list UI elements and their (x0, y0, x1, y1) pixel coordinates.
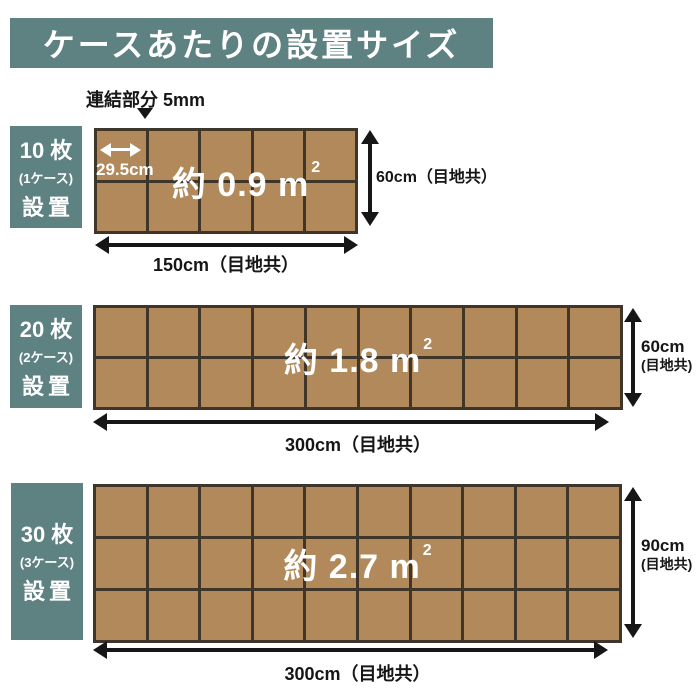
width-dimension-label-2: 300cm（目地共） (93, 431, 623, 457)
tile (518, 308, 568, 356)
case-count-box-2: 20 枚 (2ケース) 設置 (10, 305, 82, 408)
install-label: 設置 (23, 574, 75, 606)
height-dimension-label-3: 90cm (目地共) (641, 536, 692, 573)
tile (254, 539, 304, 588)
tile (307, 308, 357, 356)
height-dimension-arrow-1 (368, 143, 372, 213)
install-label: 設置 (22, 369, 74, 401)
tile (201, 308, 251, 356)
tile (201, 591, 251, 640)
tile (517, 539, 567, 588)
tile (96, 308, 146, 356)
height-dimension-label-2: 60cm (目地共) (641, 337, 692, 374)
width-dimension-label-3: 300cm（目地共） (93, 660, 622, 686)
tile (518, 359, 568, 407)
tile (464, 487, 514, 536)
tile (149, 131, 198, 180)
tile (306, 487, 356, 536)
title-banner: ケースあたりの設置サイズ (10, 18, 493, 68)
tile (570, 308, 620, 356)
tile (201, 539, 251, 588)
tile (96, 539, 146, 588)
tile-grid-3 (93, 484, 622, 643)
tile (201, 359, 251, 407)
tile (464, 539, 514, 588)
tile (254, 308, 304, 356)
tile (201, 131, 250, 180)
tile (96, 359, 146, 407)
tile (412, 359, 462, 407)
installation-size-infographic: ケースあたりの設置サイズ 連結部分 5mm 10 枚 (1ケース) 設置 約 0… (0, 0, 700, 700)
tile (359, 539, 409, 588)
height-dimension-label-1: 60cm（目地共） (376, 168, 497, 187)
tile-width-arrow (110, 148, 131, 151)
tile (464, 591, 514, 640)
tile (360, 359, 410, 407)
tile (306, 539, 356, 588)
tile (149, 308, 199, 356)
width-dimension-arrow-3 (106, 648, 595, 652)
tile (96, 487, 146, 536)
width-dimension-arrow-1 (108, 243, 345, 247)
tile (254, 359, 304, 407)
tile (149, 591, 199, 640)
height-value: 90cm (641, 536, 692, 556)
tile (306, 591, 356, 640)
tile (149, 183, 198, 232)
down-triangle-icon (137, 108, 153, 119)
case-count-label: (1ケース) (19, 168, 73, 187)
tile (306, 131, 355, 180)
tile (412, 591, 462, 640)
tile (517, 487, 567, 536)
tile (412, 487, 462, 536)
tile (570, 359, 620, 407)
tile (569, 591, 619, 640)
case-count-box-1: 10 枚 (1ケース) 設置 (10, 126, 82, 228)
tile (517, 591, 567, 640)
tile (254, 591, 304, 640)
tile-count-label: 30 枚 (21, 517, 74, 549)
height-dimension-arrow-2 (631, 321, 635, 394)
page-title: ケースあたりの設置サイズ (43, 20, 460, 66)
case-count-box-3: 30 枚 (3ケース) 設置 (11, 483, 83, 640)
tile (359, 591, 409, 640)
tile (149, 539, 199, 588)
tile-grid-2 (93, 305, 623, 410)
tile (359, 487, 409, 536)
tile (201, 487, 251, 536)
tile (306, 183, 355, 232)
tile (412, 308, 462, 356)
tile (465, 308, 515, 356)
tile (254, 131, 303, 180)
case-count-label: (3ケース) (20, 552, 74, 571)
case-count-label: (2ケース) (19, 347, 73, 366)
tile (569, 487, 619, 536)
tile-width-label: 29.5cm (96, 160, 154, 180)
tile (254, 183, 303, 232)
tile (254, 487, 304, 536)
height-note: (目地共) (641, 556, 692, 573)
height-value: 60cm (641, 337, 692, 357)
tile (97, 183, 146, 232)
tile-count-label: 10 枚 (20, 133, 73, 165)
tile (360, 308, 410, 356)
tile (149, 359, 199, 407)
tile (465, 359, 515, 407)
tile (201, 183, 250, 232)
height-dimension-arrow-3 (631, 500, 635, 625)
tile-count-label: 20 枚 (20, 312, 73, 344)
width-dimension-arrow-2 (106, 420, 596, 424)
tile (307, 359, 357, 407)
tile (149, 487, 199, 536)
height-note: (目地共) (641, 357, 692, 374)
tile (412, 539, 462, 588)
install-label: 設置 (22, 190, 74, 222)
tile (569, 539, 619, 588)
tile (96, 591, 146, 640)
width-dimension-label-1: 150cm（目地共） (94, 251, 358, 277)
